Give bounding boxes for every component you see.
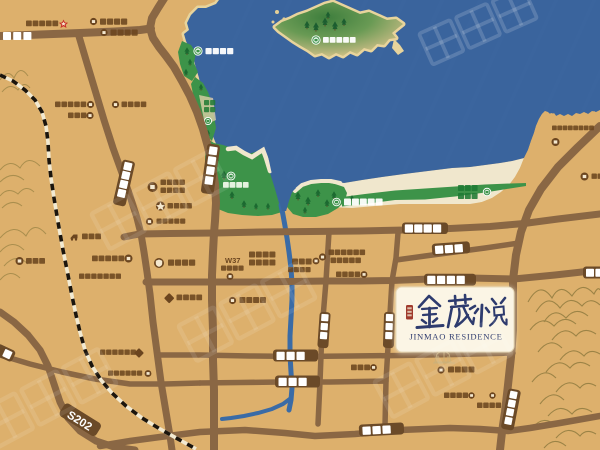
svg-text:JINMAO RESIDENCE: JINMAO RESIDENCE (409, 332, 502, 342)
svg-text:W37: W37 (225, 256, 240, 265)
